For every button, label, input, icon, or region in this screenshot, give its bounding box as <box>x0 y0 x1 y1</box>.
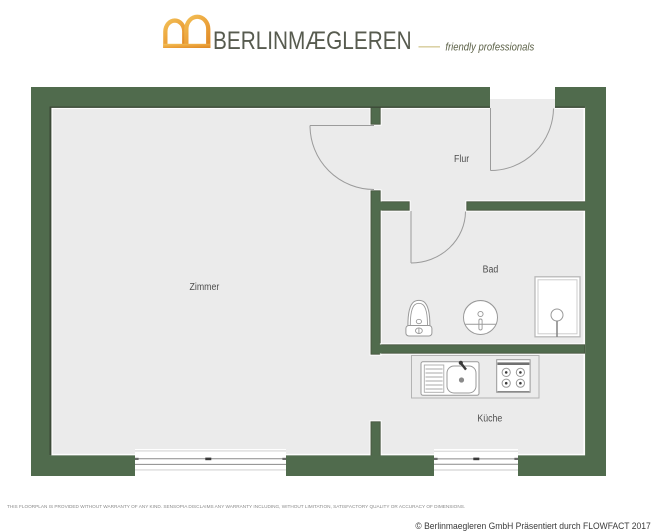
svg-text:Zimmer: Zimmer <box>190 280 220 292</box>
svg-text:friendly professionals: friendly professionals <box>445 42 534 54</box>
svg-text:THIS FLOORPLAN IS PROVIDED WIT: THIS FLOORPLAN IS PROVIDED WITHOUT WARRA… <box>7 504 465 509</box>
svg-text:Bad: Bad <box>483 263 499 275</box>
svg-text:Küche: Küche <box>477 412 502 424</box>
svg-text:© Berlinmaegleren GmbH Präsent: © Berlinmaegleren GmbH Präsentiert durch… <box>415 521 650 531</box>
svg-text:BERLINMÆGLEREN: BERLINMÆGLEREN <box>213 26 412 54</box>
svg-text:Flur: Flur <box>454 152 469 164</box>
